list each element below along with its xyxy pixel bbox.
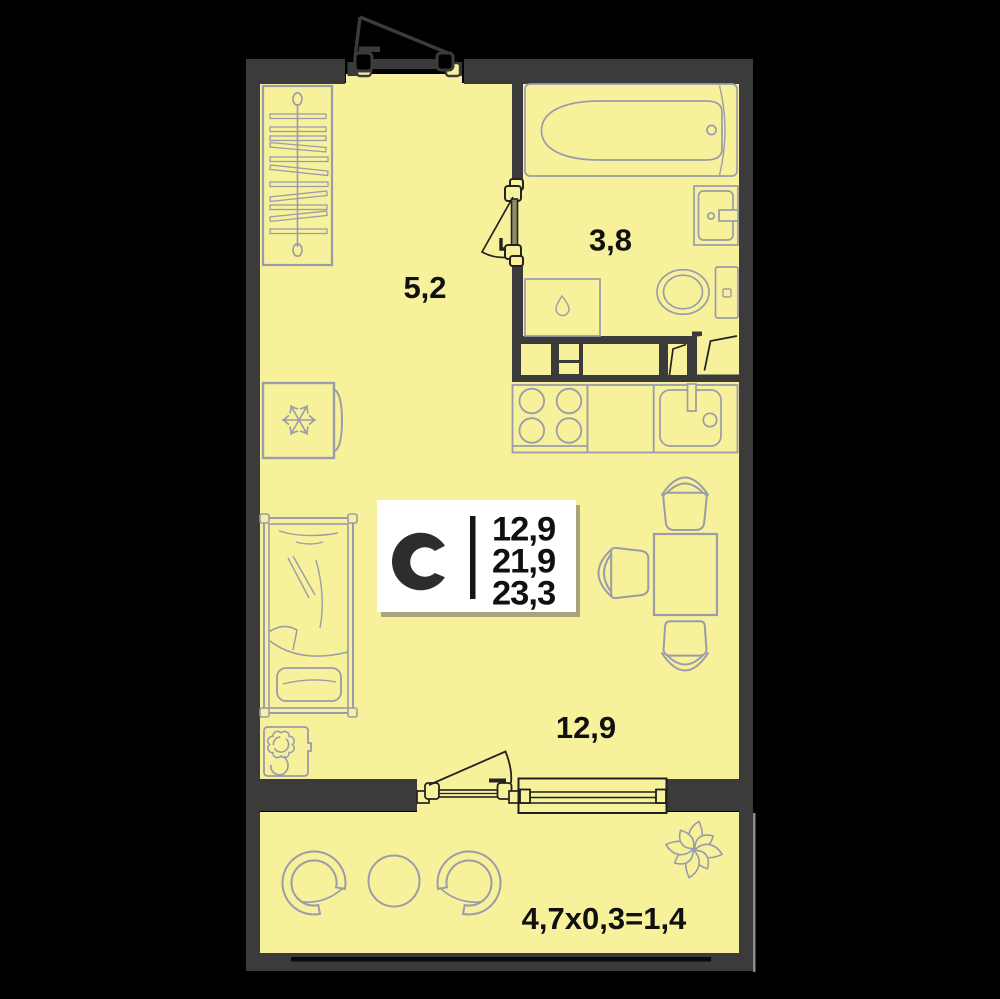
svg-text:12,9: 12,9 bbox=[556, 710, 616, 745]
svg-text:23,3: 23,3 bbox=[492, 575, 555, 613]
svg-text:4,7x0,3=1,4: 4,7x0,3=1,4 bbox=[522, 901, 687, 936]
svg-text:5,2: 5,2 bbox=[403, 270, 446, 305]
svg-text:3,8: 3,8 bbox=[589, 223, 632, 258]
